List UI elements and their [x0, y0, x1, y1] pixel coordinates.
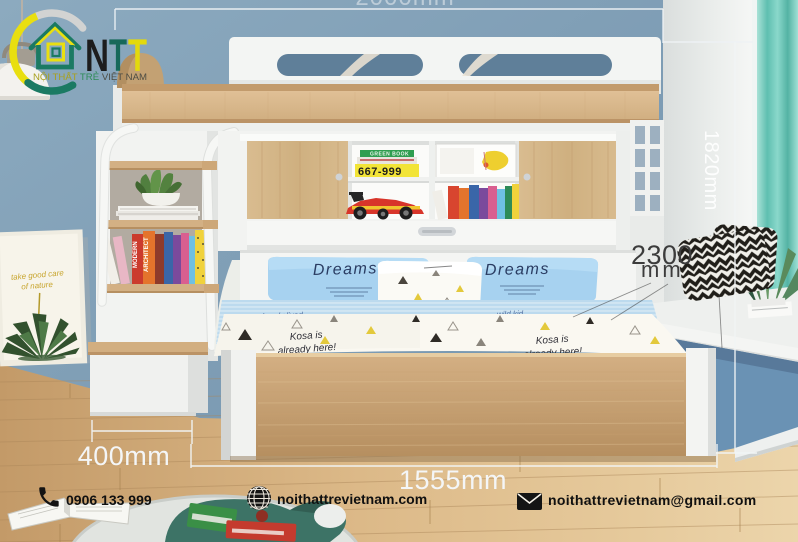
svg-text:0906 133 999: 0906 133 999 — [66, 492, 152, 508]
svg-text:MODERN: MODERN — [133, 241, 139, 268]
svg-text:Kosa is: Kosa is — [535, 334, 568, 347]
svg-text:667-999: 667-999 — [358, 166, 402, 178]
svg-text:mm: mm — [641, 257, 684, 282]
svg-text:2000mm: 2000mm — [355, 0, 454, 11]
svg-text:NỘI THẤT TRẺ VIỆT NAM: NỘI THẤT TRẺ VIỆT NAM — [33, 71, 147, 82]
svg-text:noithattrevietnam.com: noithattrevietnam.com — [277, 491, 427, 507]
svg-text:400mm: 400mm — [78, 441, 171, 471]
svg-text:Dreams: Dreams — [313, 260, 378, 279]
svg-text:ARCHITECT: ARCHITECT — [144, 237, 150, 272]
svg-text:Dreams: Dreams — [485, 261, 550, 279]
svg-text:1820mm: 1820mm — [700, 130, 722, 211]
svg-text:Kosa is: Kosa is — [289, 330, 322, 343]
svg-text:noithattrevietnam@gmail.com: noithattrevietnam@gmail.com — [548, 492, 756, 508]
svg-text:GREEN BOOK: GREEN BOOK — [370, 152, 409, 158]
